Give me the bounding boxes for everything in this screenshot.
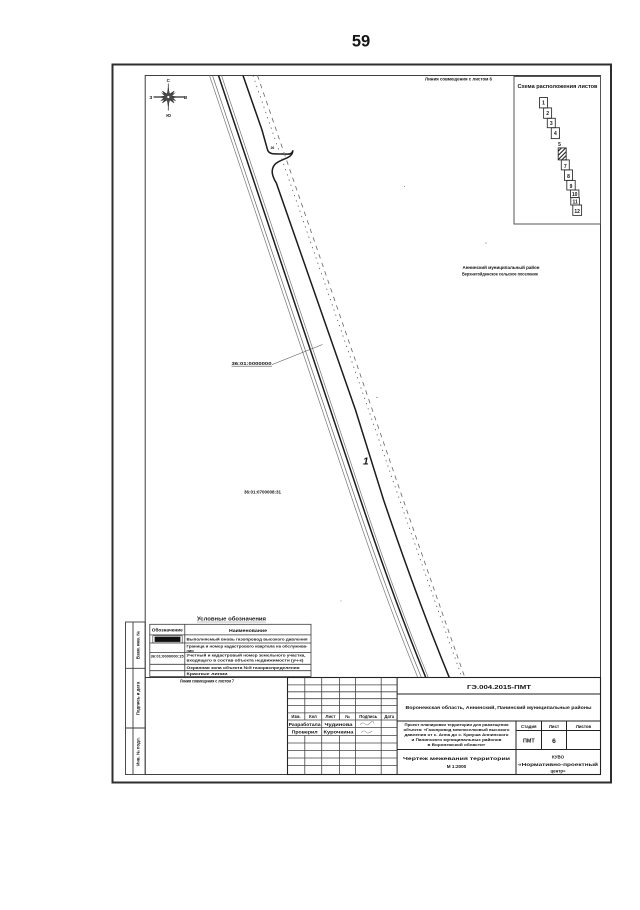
svg-text:Линия совмещения с листом 7: Линия совмещения с листом 7 bbox=[180, 679, 234, 684]
svg-text:36:01:0000000: 36:01:0000000 bbox=[232, 361, 273, 366]
svg-text:4: 4 bbox=[554, 131, 557, 137]
svg-text:в Воронежской области»: в Воронежской области» bbox=[428, 743, 486, 747]
svg-text:Наименование: Наименование bbox=[229, 628, 267, 634]
svg-text:В: В bbox=[184, 95, 188, 100]
svg-text:Подпись: Подпись bbox=[359, 714, 378, 719]
svg-text:Охранная зона объекта №5 газор: Охранная зона объекта №5 газораспределен… bbox=[187, 665, 300, 670]
svg-text:объекта: «Газопровод межпоселк: объекта: «Газопровод межпоселковый высок… bbox=[404, 728, 511, 732]
svg-text:2: 2 bbox=[546, 111, 549, 117]
svg-text:и Панинского муниципальных рай: и Панинского муниципальных районов bbox=[412, 738, 503, 742]
svg-text:Граница и номер кадастрового к: Граница и номер кадастрового квартала на… bbox=[187, 643, 309, 648]
svg-text:центр»: центр» bbox=[550, 769, 566, 774]
svg-text:1: 1 bbox=[542, 101, 545, 107]
svg-text:входящего в состав объекта нед: входящего в состав объекта недвижимости … bbox=[187, 658, 305, 663]
svg-text:Разработала: Разработала bbox=[289, 722, 322, 727]
svg-text:Подпись и дата: Подпись и дата bbox=[136, 681, 141, 715]
svg-text:Схема расположения листов: Схема расположения листов bbox=[518, 84, 599, 90]
svg-text:Взам. инв. №: Взам. инв. № bbox=[136, 631, 141, 659]
svg-text:Курочкина: Курочкина bbox=[324, 730, 355, 735]
svg-text:давления от с. Анна до с. Криу: давления от с. Анна до с. Криуша Аннинск… bbox=[405, 733, 510, 737]
svg-text:Проверил: Проверил bbox=[292, 730, 318, 735]
svg-text:М 1:2000: М 1:2000 bbox=[447, 764, 467, 769]
svg-text:Изм.: Изм. bbox=[291, 714, 300, 719]
svg-text:«Нормативно-проектный: «Нормативно-проектный bbox=[518, 762, 598, 767]
svg-text:ПМТ: ПМТ bbox=[523, 738, 535, 744]
svg-text:Условные обозначения: Условные обозначения bbox=[197, 616, 266, 623]
svg-text:Обозначение: Обозначение bbox=[152, 628, 184, 633]
svg-text:Аннинский муниципальный район: Аннинский муниципальный район bbox=[463, 265, 540, 270]
svg-text:1: 1 bbox=[363, 457, 369, 468]
svg-text:Красные линии: Красные линии bbox=[187, 671, 229, 676]
svg-text:Проект планировки территории д: Проект планировки территории для размеще… bbox=[405, 723, 509, 727]
svg-text:Листов: Листов bbox=[576, 724, 592, 729]
svg-text:36:01:0000000:15: 36:01:0000000:15 bbox=[151, 655, 184, 659]
svg-text:36:01:0700008:31: 36:01:0700008:31 bbox=[244, 490, 282, 495]
svg-text:6: 6 bbox=[552, 738, 556, 745]
svg-text:Кол: Кол bbox=[309, 714, 317, 719]
svg-text:Стадия: Стадия bbox=[521, 724, 537, 729]
svg-text:Лист: Лист bbox=[549, 724, 559, 729]
svg-text:Воронежская область, Аннинский: Воронежская область, Аннинский, Панински… bbox=[406, 705, 592, 710]
svg-text:59: 59 bbox=[352, 33, 370, 51]
svg-text:ГЭ.004.2015-ПМТ: ГЭ.004.2015-ПМТ bbox=[467, 685, 532, 691]
svg-text:26: 26 bbox=[271, 146, 275, 150]
svg-text:Инв. № подл.: Инв. № подл. bbox=[136, 737, 141, 766]
svg-text:Выполняемый вновь газопровод в: Выполняемый вновь газопровод высокого да… bbox=[187, 637, 308, 642]
svg-text:10: 10 bbox=[572, 192, 578, 198]
svg-text:КУВО: КУВО bbox=[552, 755, 565, 760]
svg-text:12: 12 bbox=[574, 209, 580, 215]
svg-text:8: 8 bbox=[567, 174, 570, 180]
svg-text:7: 7 bbox=[564, 164, 567, 170]
svg-text:Верхнетойденское сельское посе: Верхнетойденское сельское поселение bbox=[462, 272, 539, 277]
svg-text:3: 3 bbox=[550, 121, 553, 127]
svg-text:5: 5 bbox=[558, 142, 561, 148]
svg-text:Ю: Ю bbox=[166, 113, 171, 118]
svg-text:Чертеж межевания территории: Чертеж межевания территории bbox=[403, 756, 510, 761]
svg-text:З: З bbox=[149, 95, 152, 100]
svg-text:9: 9 bbox=[570, 184, 573, 190]
svg-text:С: С bbox=[167, 78, 171, 83]
svg-text:11: 11 bbox=[572, 200, 578, 206]
svg-text:№: № bbox=[345, 714, 350, 719]
svg-text:Дата: Дата bbox=[384, 714, 394, 719]
svg-text:Линия совмещения с листом 6: Линия совмещения с листом 6 bbox=[425, 77, 493, 82]
svg-text:Чудинова: Чудинова bbox=[325, 722, 354, 727]
svg-text:Лист: Лист bbox=[326, 714, 336, 719]
